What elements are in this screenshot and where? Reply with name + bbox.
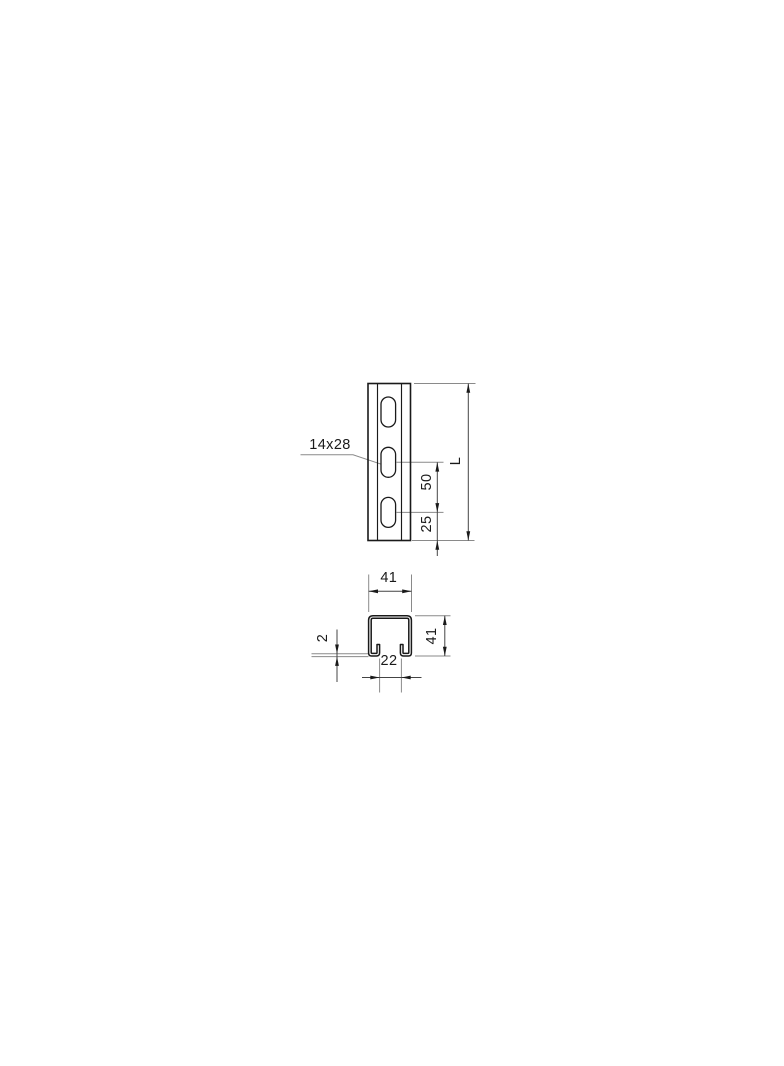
- arrow-up-icon: [435, 462, 439, 471]
- arrow-left-icon: [401, 676, 410, 680]
- leader-line-hole-size: [301, 455, 382, 465]
- arrow-down-icon: [466, 531, 470, 540]
- drawing-linework: [0, 0, 784, 1066]
- wall-thickness-dim-label: 2: [315, 633, 330, 641]
- arrow-down-icon: [443, 647, 447, 656]
- channel-profile-outline: [369, 616, 412, 656]
- slot-hole: [381, 497, 396, 527]
- arrow-right-icon: [370, 676, 379, 680]
- slot-hole: [381, 447, 396, 477]
- front-view: [301, 384, 476, 557]
- arrow-up-icon: [443, 616, 447, 625]
- arrow-up-icon: [435, 541, 439, 550]
- arrow-down-icon: [435, 503, 439, 512]
- hole-spacing-dim-label: 50: [420, 473, 435, 490]
- slot-opening-dim-label: 22: [381, 653, 398, 668]
- technical-drawing-canvas: 14x28 50 25 L 41 41 22 2: [0, 0, 784, 1066]
- arrow-left-icon: [369, 589, 378, 593]
- profile-height-dim-label: 41: [424, 627, 439, 644]
- hole-size-label: 14x28: [309, 438, 351, 453]
- arrow-right-icon: [402, 589, 411, 593]
- hole-end-offset-dim-label: 25: [420, 515, 435, 532]
- arrow-up-icon: [466, 384, 470, 393]
- slot-hole: [381, 397, 396, 427]
- arrow-up-icon: [335, 657, 339, 666]
- arrow-down-icon: [335, 645, 339, 654]
- length-dim-label: L: [448, 457, 463, 465]
- profile-width-dim-label: 41: [380, 571, 397, 586]
